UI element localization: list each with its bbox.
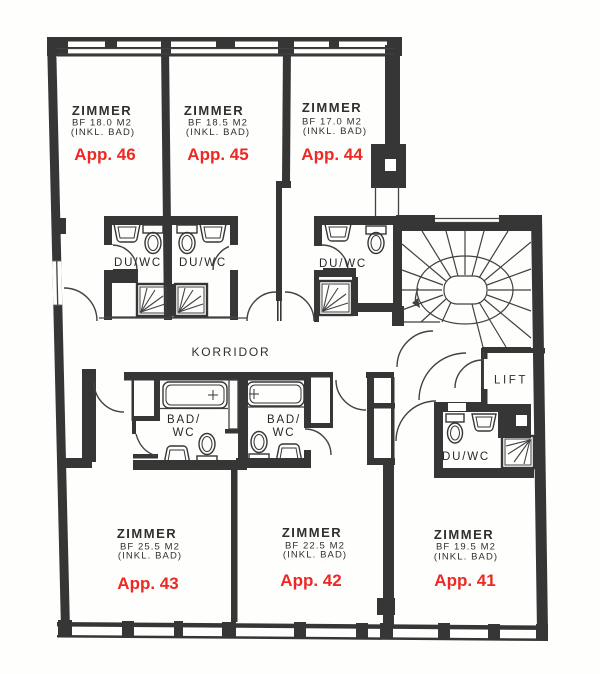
svg-text:DU/WC: DU/WC xyxy=(179,257,227,269)
svg-text:ZIMMER: ZIMMER xyxy=(282,525,342,540)
svg-text:BAD/: BAD/ xyxy=(267,414,301,426)
svg-text:DU/WC: DU/WC xyxy=(442,451,490,463)
svg-text:(INKL. BAD): (INKL. BAD) xyxy=(118,551,182,562)
svg-text:App. 41: App. 41 xyxy=(434,571,495,590)
svg-text:(INKL. BAD): (INKL. BAD) xyxy=(186,127,250,138)
svg-text:DU/WC: DU/WC xyxy=(114,257,162,269)
svg-text:(INKL. BAD): (INKL. BAD) xyxy=(283,550,347,561)
svg-text:App. 42: App. 42 xyxy=(280,571,341,590)
svg-text:App. 45: App. 45 xyxy=(187,145,248,164)
svg-text:ZIMMER: ZIMMER xyxy=(72,103,132,118)
svg-text:BAD/: BAD/ xyxy=(167,414,201,426)
svg-text:(INKL. BAD): (INKL. BAD) xyxy=(303,126,367,137)
svg-text:DU/WC: DU/WC xyxy=(319,258,367,270)
svg-text:KORRIDOR: KORRIDOR xyxy=(191,345,270,359)
svg-text:(INKL. BAD): (INKL. BAD) xyxy=(434,552,498,563)
svg-text:ZIMMER: ZIMMER xyxy=(302,100,362,115)
svg-text:App. 43: App. 43 xyxy=(117,574,178,593)
svg-text:WC: WC xyxy=(173,427,196,439)
svg-text:WC: WC xyxy=(273,427,296,439)
svg-text:ZIMMER: ZIMMER xyxy=(434,527,494,542)
svg-text:App. 46: App. 46 xyxy=(74,145,135,164)
svg-text:App. 44: App. 44 xyxy=(301,145,363,164)
svg-text:LIFT: LIFT xyxy=(494,375,528,387)
svg-text:ZIMMER: ZIMMER xyxy=(117,526,177,541)
svg-text:ZIMMER: ZIMMER xyxy=(184,103,244,118)
svg-text:(INKL. BAD): (INKL. BAD) xyxy=(71,127,135,138)
